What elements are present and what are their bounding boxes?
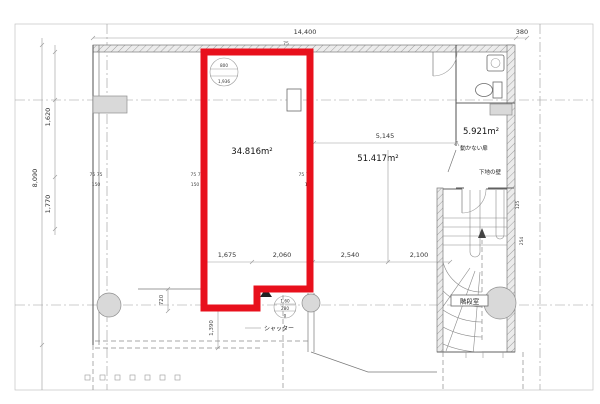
dim-bottom-2: 2,060 [273, 251, 292, 259]
grid-centerlines [15, 24, 593, 390]
sink-icon [487, 55, 504, 71]
level-mid-text: 280 [281, 306, 289, 311]
base-wall-label: 下地の壁 [479, 168, 502, 176]
dim-step: 720 [159, 294, 165, 305]
top-dimensions: 14,400 75 380 [91, 28, 529, 47]
upper-circle-bottom-text: 1,936 [218, 79, 230, 84]
floor-plan-page: 14,400 75 380 1,620 8,090 1,770 [0, 0, 600, 404]
area-label-center: 51.417m² [357, 154, 398, 164]
level-bottom-text: 0 [284, 314, 287, 319]
shutter-label: シャッター [264, 325, 294, 333]
left-pilaster [93, 96, 127, 113]
column-circle-left [97, 293, 121, 317]
up-arrow-icon [478, 228, 486, 238]
dim-left-overall: 8,090 [31, 169, 39, 188]
wc-room [433, 45, 515, 115]
duct-shaft [490, 104, 512, 115]
dim-bottom-4: 2,100 [410, 251, 429, 259]
dim-right-wall-lower: 254 [519, 237, 525, 246]
column-circle-right [484, 287, 516, 319]
fixed-door-leaf [448, 150, 456, 172]
outer-frame [15, 24, 593, 390]
walls [93, 45, 515, 390]
upper-circle-mark: 800 1,936 [210, 58, 238, 86]
dim-shutter-opening: 1,390 [209, 320, 215, 336]
stairwell-label: 階段室 [460, 297, 480, 306]
area-label-highlighted: 34.816m² [231, 147, 272, 157]
lower-left-details: 720 1,390 シャッター [85, 287, 308, 380]
area-label-upper-right: 5.921m² [463, 127, 499, 137]
dim-bottom-1: 1,675 [218, 251, 237, 259]
fixed-door-label: 動かない扉 [460, 144, 488, 152]
wall-single-left: 150 [92, 182, 101, 188]
stair-rail-2 [496, 190, 504, 239]
floor-plan-canvas: 14,400 75 380 1,620 8,090 1,770 [0, 0, 600, 404]
dim-mid-span: 5,145 [376, 132, 395, 140]
wall-pair-left: 75 75 [90, 172, 103, 178]
level-top-text: 1,60 [280, 299, 290, 304]
column-circle-center [302, 294, 320, 312]
dim-top-overall: 14,400 [294, 28, 317, 36]
bottom-dimensions: 1,675 2,060 2,540 2,100 [201, 150, 452, 264]
upper-right-room: 5.921m² 動かない扉 下地の壁 [448, 103, 514, 188]
dim-left-upper: 1,620 [44, 108, 52, 127]
toilet-tank [493, 82, 502, 98]
dim-bottom-3: 2,540 [341, 251, 360, 259]
dim-right-wall-upper: 125 [515, 201, 521, 210]
center-area: 51.417m² 5,145 [302, 132, 458, 372]
left-dimensions: 1,620 8,090 1,770 [31, 38, 57, 390]
center-column-box [287, 89, 301, 111]
stair-rail [470, 190, 480, 257]
dim-top-right: 380 [516, 28, 528, 36]
level-mark: 1,60 280 0 [260, 288, 296, 319]
toilet-icon [476, 84, 493, 97]
upper-circle-top-text: 800 [220, 63, 228, 68]
hatch-squares [85, 375, 180, 380]
dim-left-lower: 1,770 [44, 195, 52, 214]
stair-treads [421, 218, 507, 356]
wall-single-red-left: 150 [191, 182, 200, 188]
